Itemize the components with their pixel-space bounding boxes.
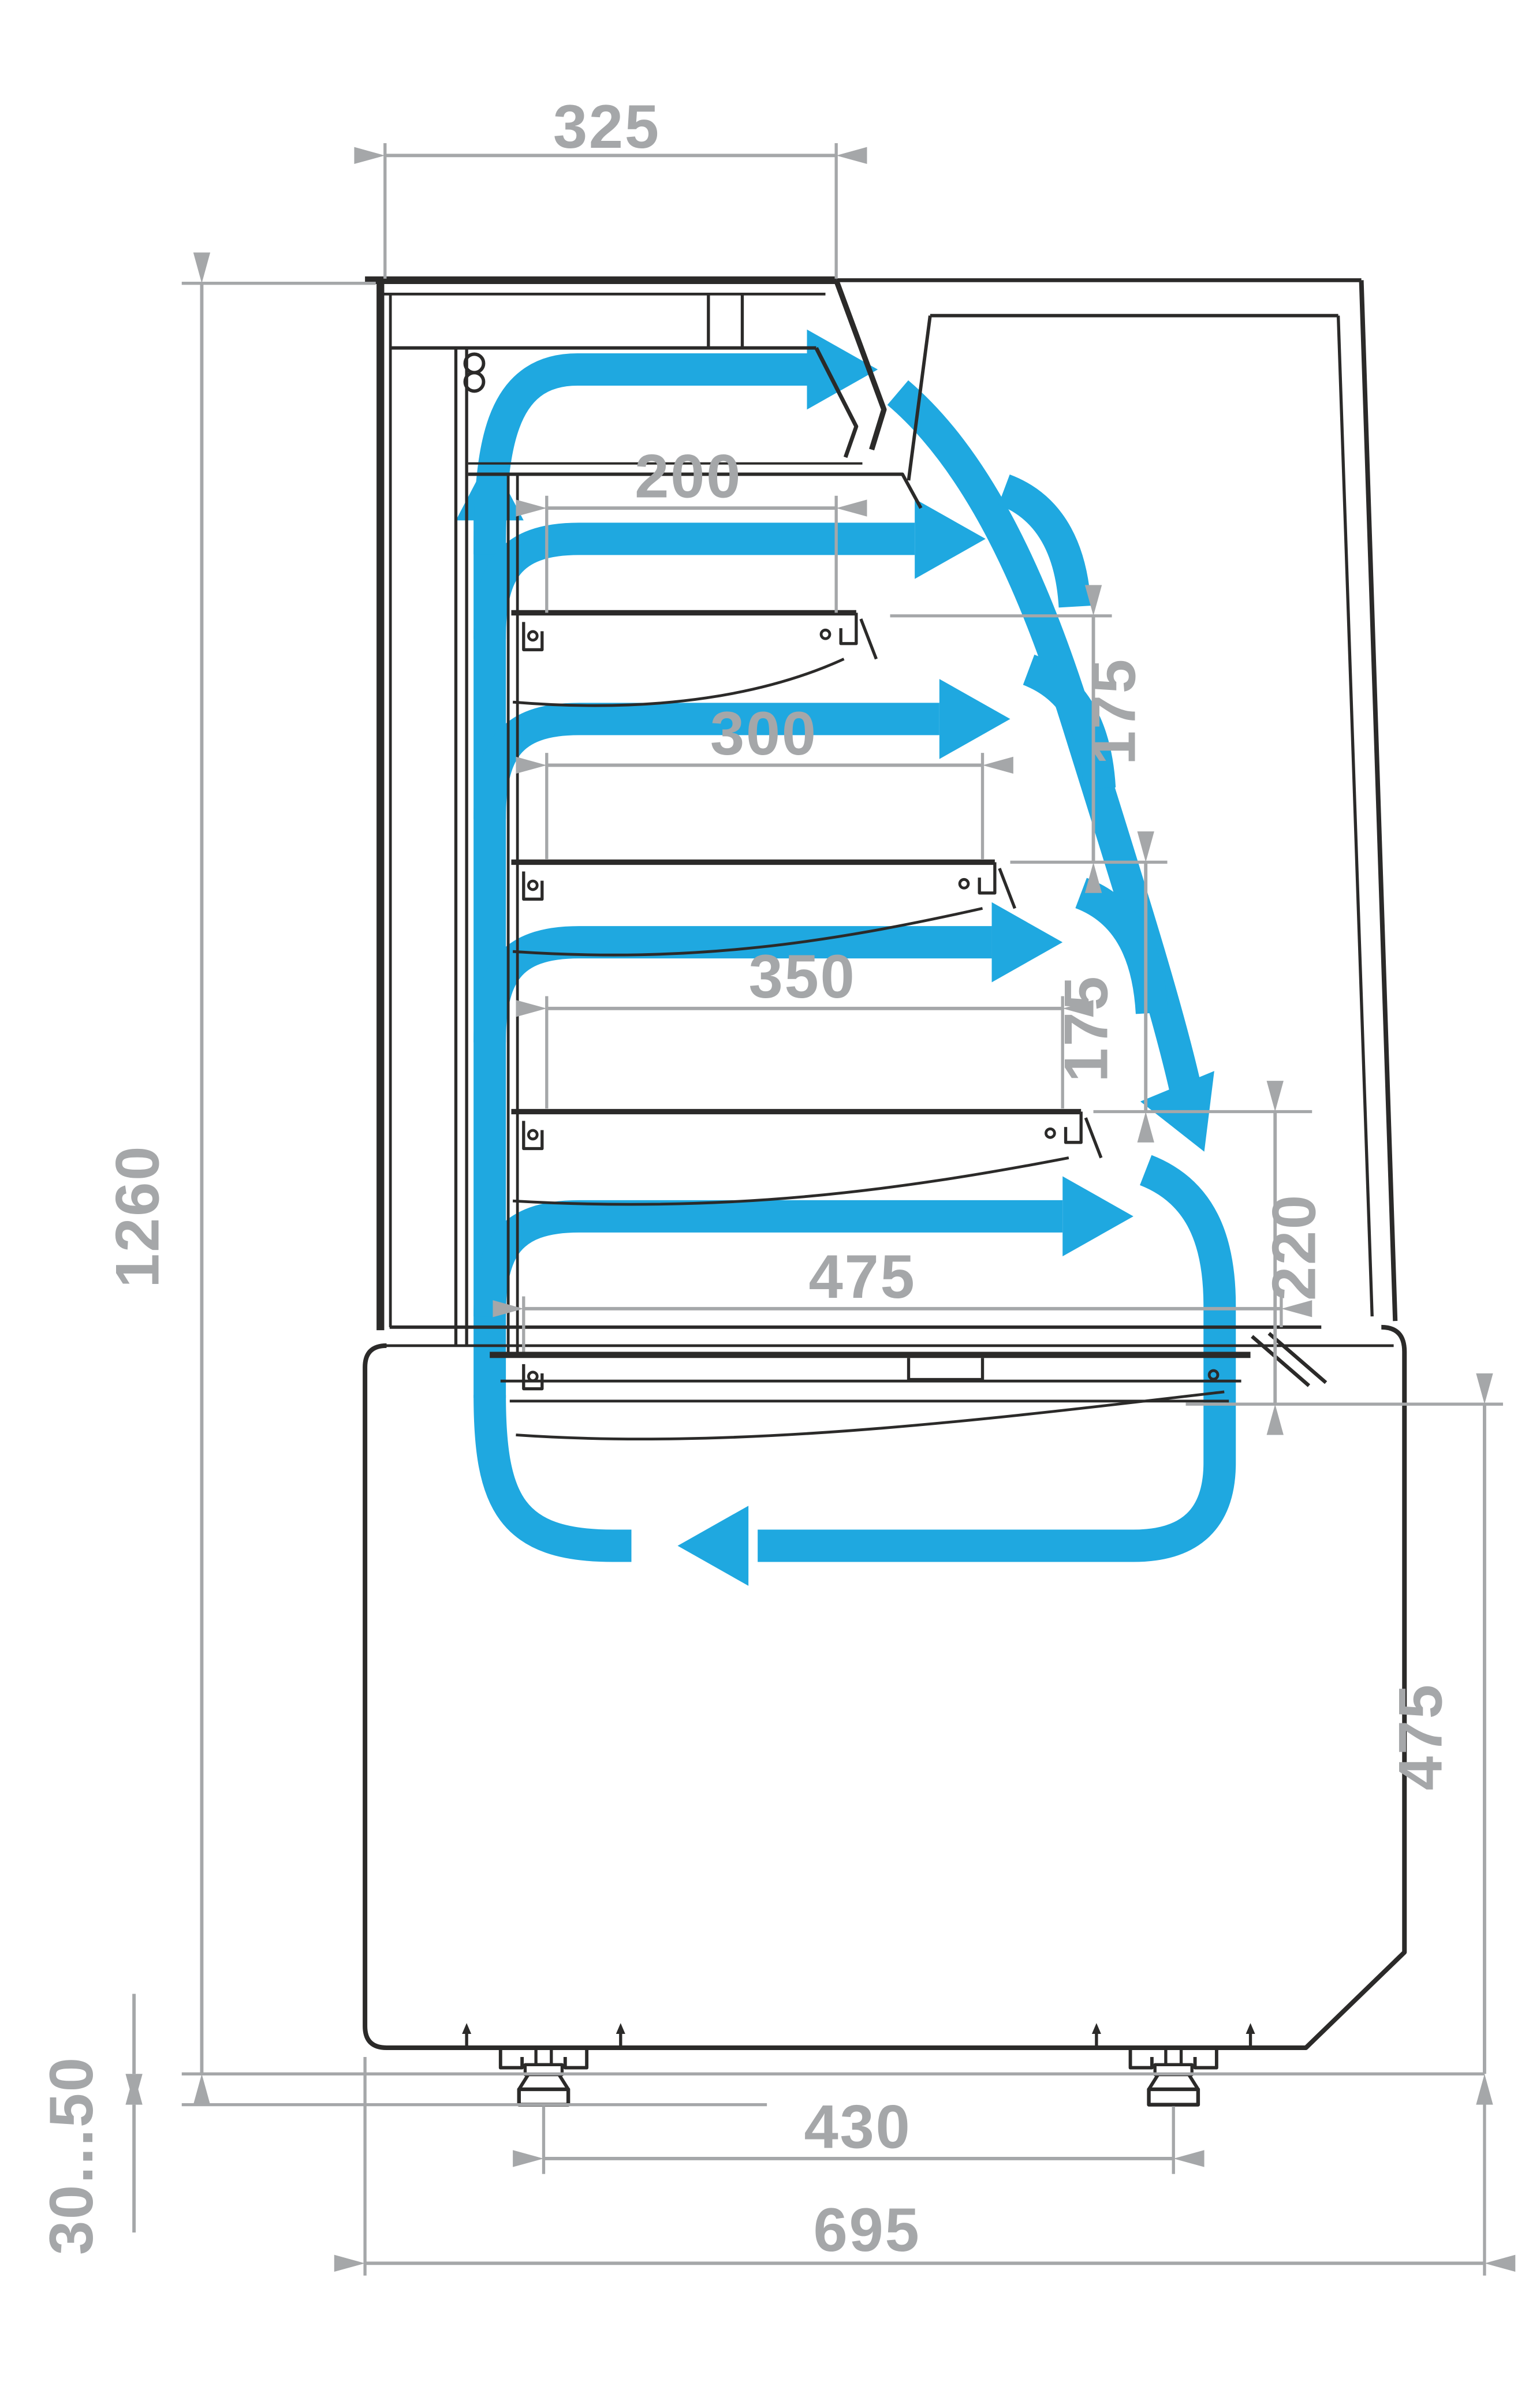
airflow-well-arrowhead bbox=[1062, 1176, 1133, 1256]
dim-label-475-base: 475 bbox=[1385, 1683, 1455, 1790]
dim-label-30-50: 30...50 bbox=[36, 2056, 106, 2255]
dim-label-300: 300 bbox=[710, 699, 818, 768]
dim-label-200: 200 bbox=[635, 441, 742, 510]
dim-label-175a: 175 bbox=[1079, 658, 1149, 765]
dim-label-430: 430 bbox=[804, 2092, 912, 2161]
display-case-section-diagram: 325 1260 200 300 350 475 bbox=[0, 0, 1540, 2408]
dim-label-475-well: 475 bbox=[809, 1242, 916, 1311]
dimension-30-50-foot-range: 30...50 bbox=[36, 1994, 134, 2255]
airflow-shelf2-arrowhead bbox=[939, 679, 1010, 759]
dimension-325-top-width: 325 bbox=[385, 92, 836, 279]
dim-label-175b: 175 bbox=[1051, 975, 1121, 1082]
well-deck bbox=[382, 1327, 1393, 1439]
shelf-1 bbox=[511, 613, 876, 705]
airflow-return-arrowhead bbox=[677, 1506, 748, 1586]
lamp-box-lines bbox=[709, 294, 743, 348]
dimension-475-well-depth: 475 bbox=[524, 1242, 1281, 1352]
airflow-well bbox=[490, 1216, 1062, 1316]
airflow-shelf3-arrowhead bbox=[992, 902, 1063, 983]
adjustable-foot-left bbox=[462, 2023, 625, 2104]
technical-drawing-page: 325 1260 200 300 350 475 bbox=[0, 0, 1540, 2408]
dimension-350-shelf3: 350 bbox=[547, 942, 1062, 1108]
airflow-shelf3 bbox=[490, 942, 991, 1042]
shelf-3 bbox=[511, 1111, 1101, 1204]
dim-label-350: 350 bbox=[749, 942, 856, 1011]
dim-label-325: 325 bbox=[553, 92, 661, 161]
return-grille-louvers bbox=[1252, 1334, 1326, 1386]
airflow-shelf1 bbox=[490, 539, 915, 639]
dimensions: 325 1260 200 300 350 475 bbox=[36, 92, 1503, 2276]
dim-label-1260: 1260 bbox=[103, 1145, 172, 1288]
dimension-1260-case-height: 1260 bbox=[103, 283, 376, 2074]
dim-label-695: 695 bbox=[814, 2195, 921, 2264]
dimension-475-base-height: 475 bbox=[1385, 1404, 1485, 2074]
adjustable-foot-right bbox=[1092, 2023, 1255, 2104]
airflow-return-left-bend bbox=[490, 1395, 631, 1545]
air-duct-wall bbox=[456, 348, 467, 1346]
dim-label-220: 220 bbox=[1259, 1193, 1329, 1301]
